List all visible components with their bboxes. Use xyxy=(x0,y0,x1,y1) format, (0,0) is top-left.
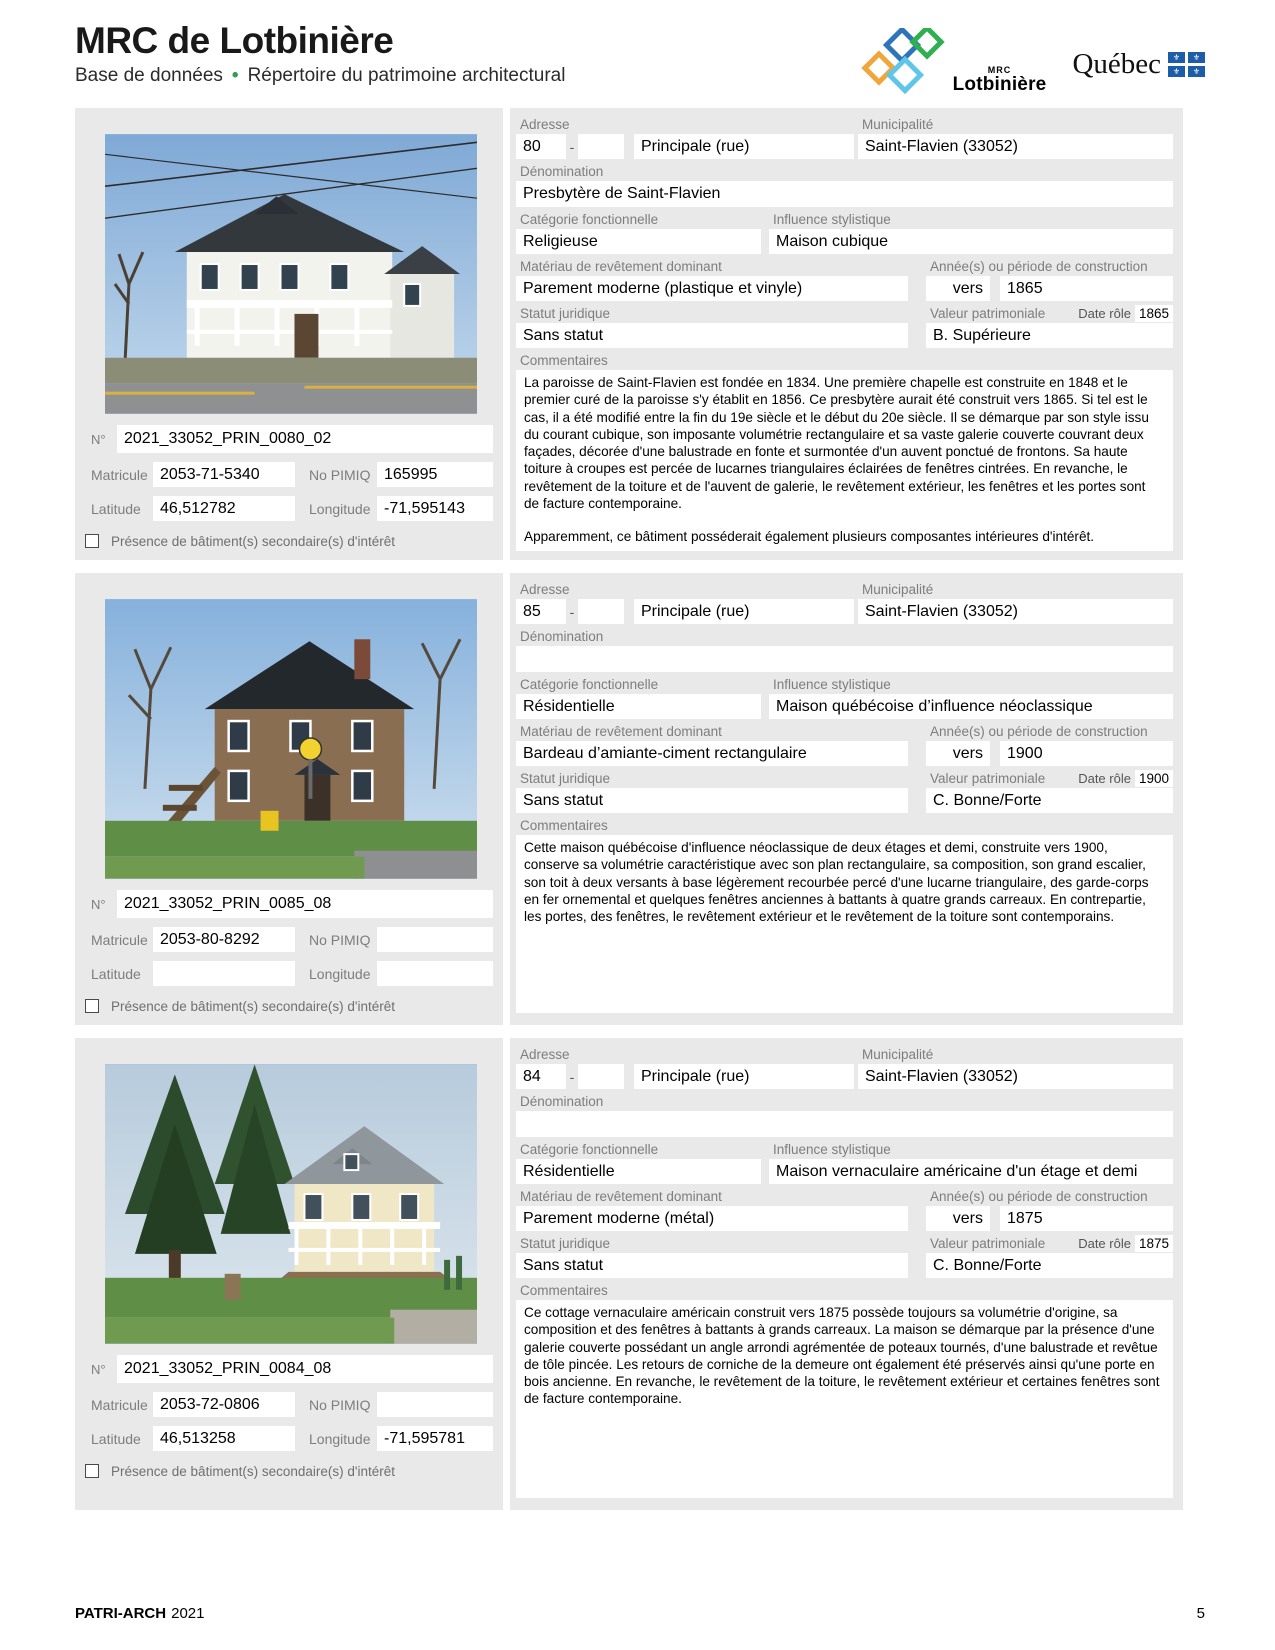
heritage-label-row: Valeur patrimoniale Date rôle 1865 xyxy=(926,303,1173,323)
footer-year: 2021 xyxy=(171,1605,204,1622)
statut-label: Statut juridique xyxy=(516,1233,908,1253)
record-2-status-row: Statut juridique Sans statut Valeur patr… xyxy=(516,768,1173,813)
categorie-label: Catégorie fonctionnelle xyxy=(516,209,761,229)
address-number2-value xyxy=(578,134,624,159)
record-1-denomination-row: Dénomination Presbytère de Saint-Flavien xyxy=(516,161,1173,207)
address-number2-value xyxy=(578,599,624,624)
municipality-group: Municipalité Saint-Flavien (33052) xyxy=(858,1044,1173,1089)
heritage-value-group: Valeur patrimoniale Date rôle 1875 C. Bo… xyxy=(926,1233,1173,1278)
record-3-right-column: Adresse 84 - Principale (rue) Municipali… xyxy=(510,1038,1183,1510)
secondary-buildings-label: Présence de bâtiment(s) secondaire(s) d'… xyxy=(107,531,397,551)
statut-value: Sans statut xyxy=(516,323,908,348)
matricule-label: Matricule xyxy=(87,1394,153,1415)
no-pimiq-label: No PIMIQ xyxy=(305,1394,377,1415)
annee-label: Année(s) ou période de construction xyxy=(926,721,1173,741)
municipalite-value: Saint-Flavien (33052) xyxy=(858,1064,1173,1089)
materiau-label: Matériau de revêtement dominant xyxy=(516,1186,908,1206)
comment-paragraph: Cette maison québécoise d'influence néoc… xyxy=(524,839,1164,925)
record-1-material-row: Matériau de revêtement dominant Parement… xyxy=(516,256,1173,301)
address-number-value: 80 xyxy=(516,134,566,159)
building-photo-presbytere xyxy=(105,134,477,414)
longitude-value: -71,595781 xyxy=(377,1426,493,1451)
address-fields: 84 - Principale (rue) xyxy=(516,1064,854,1089)
adresse-label: Adresse xyxy=(516,114,854,134)
material-group: Matériau de revêtement dominant Parement… xyxy=(516,1186,908,1231)
materiau-value: Bardeau d’amiante-ciment rectangulaire xyxy=(516,741,908,766)
address-group: Adresse 85 - Principale (rue) xyxy=(516,579,854,624)
record-3-coords-row: Latitude 46,513258 Longitude -71,595781 xyxy=(87,1426,493,1451)
page-number: 5 xyxy=(1197,1605,1205,1622)
record-3-status-row: Statut juridique Sans statut Valeur patr… xyxy=(516,1233,1173,1278)
matricule-label: Matricule xyxy=(87,464,153,485)
valeur-value: C. Bonne/Forte xyxy=(926,788,1173,813)
quebec-wordmark: Québec xyxy=(1072,48,1161,81)
statut-value: Sans statut xyxy=(516,1253,908,1278)
municipalite-value: Saint-Flavien (33052) xyxy=(858,599,1173,624)
record-1-right-column: Adresse 80 - Principale (rue) Municipali… xyxy=(510,108,1183,560)
record-1-address-row: Adresse 80 - Principale (rue) Municipali… xyxy=(516,114,1173,159)
record-card-3: N° 2021_33052_PRIN_0084_08 Matricule 205… xyxy=(75,1038,1183,1510)
construction-year-group: Année(s) ou période de construction vers… xyxy=(926,1186,1173,1231)
influence-label: Influence stylistique xyxy=(769,209,1173,229)
record-2-material-row: Matériau de revêtement dominant Bardeau … xyxy=(516,721,1173,766)
page-footer: PATRI-ARCH 2021 5 xyxy=(75,1605,1205,1622)
comment-paragraph: Ce cottage vernaculaire américain constr… xyxy=(524,1304,1164,1408)
footer-brand: PATRI-ARCH xyxy=(75,1605,166,1622)
heritage-value-group: Valeur patrimoniale Date rôle 1865 B. Su… xyxy=(926,303,1173,348)
matricule-value: 2053-80-8292 xyxy=(153,927,295,952)
numero-value: 2021_33052_PRIN_0080_02 xyxy=(117,425,493,453)
street-value: Principale (rue) xyxy=(634,134,854,159)
address-group: Adresse 80 - Principale (rue) xyxy=(516,114,854,159)
categorie-label: Catégorie fonctionnelle xyxy=(516,674,761,694)
header-logos: MRC Lotbinière Québec ⚜ ⚜ ⚜ ⚜ xyxy=(861,28,1205,100)
year-fields: vers 1875 xyxy=(926,1206,1173,1231)
annee-value: 1865 xyxy=(1000,276,1173,301)
record-2-right-column: Adresse 85 - Principale (rue) Municipali… xyxy=(510,573,1183,1025)
record-1-coords-row: Latitude 46,512782 Longitude -71,595143 xyxy=(87,496,493,521)
quebec-flag-icon: ⚜ ⚜ ⚜ ⚜ xyxy=(1168,52,1205,77)
denomination-label: Dénomination xyxy=(516,1091,1173,1111)
no-pimiq-label: No PIMIQ xyxy=(305,929,377,950)
influence-label: Influence stylistique xyxy=(769,674,1173,694)
status-group: Statut juridique Sans statut xyxy=(516,768,908,813)
address-number-value: 84 xyxy=(516,1064,566,1089)
address-group: Adresse 84 - Principale (rue) xyxy=(516,1044,854,1089)
fleur-de-lis-icon: ⚜ xyxy=(1168,52,1185,63)
record-card-2: N° 2021_33052_PRIN_0085_08 Matricule 205… xyxy=(75,573,1183,1025)
building-photo-cottage-vernaculaire xyxy=(105,1064,477,1344)
record-3-secondary-buildings-row: Présence de bâtiment(s) secondaire(s) d'… xyxy=(85,1461,493,1481)
date-role-label: Date rôle xyxy=(1078,1236,1131,1251)
secondary-buildings-checkbox xyxy=(85,1464,99,1478)
heritage-label-row: Valeur patrimoniale Date rôle 1900 xyxy=(926,768,1173,788)
denomination-label: Dénomination xyxy=(516,161,1173,181)
valeur-value: C. Bonne/Forte xyxy=(926,1253,1173,1278)
influence-group: Influence stylistique Maison cubique xyxy=(769,209,1173,254)
secondary-buildings-checkbox xyxy=(85,999,99,1013)
year-fields: vers 1900 xyxy=(926,741,1173,766)
no-pimiq-value xyxy=(377,927,493,952)
categorie-value: Résidentielle xyxy=(516,694,761,719)
annee-value: 1875 xyxy=(1000,1206,1173,1231)
record-3-numero-row: N° 2021_33052_PRIN_0084_08 xyxy=(87,1355,493,1383)
record-2-address-row: Adresse 85 - Principale (rue) Municipali… xyxy=(516,579,1173,624)
materiau-label: Matériau de revêtement dominant xyxy=(516,256,908,276)
secondary-buildings-label: Présence de bâtiment(s) secondaire(s) d'… xyxy=(107,1461,397,1481)
denomination-value xyxy=(516,1111,1173,1137)
construction-year-group: Année(s) ou période de construction vers… xyxy=(926,256,1173,301)
matricule-label: Matricule xyxy=(87,929,153,950)
latitude-label: Latitude xyxy=(87,963,153,984)
municipalite-value: Saint-Flavien (33052) xyxy=(858,134,1173,159)
influence-group: Influence stylistique Maison vernaculair… xyxy=(769,1139,1173,1184)
commentaires-label: Commentaires xyxy=(516,815,1173,835)
longitude-value xyxy=(377,961,493,986)
municipality-group: Municipalité Saint-Flavien (33052) xyxy=(858,114,1173,159)
mrc-diamonds-icon xyxy=(861,28,947,100)
numero-value: 2021_33052_PRIN_0085_08 xyxy=(117,890,493,918)
material-group: Matériau de revêtement dominant Bardeau … xyxy=(516,721,908,766)
address-separator: - xyxy=(566,1069,578,1085)
numero-label: N° xyxy=(87,1359,117,1379)
matricule-value: 2053-72-0806 xyxy=(153,1392,295,1417)
address-fields: 85 - Principale (rue) xyxy=(516,599,854,624)
record-2-numero-row: N° 2021_33052_PRIN_0085_08 xyxy=(87,890,493,918)
record-2-coords-row: Latitude Longitude xyxy=(87,961,493,986)
record-2-denomination-row: Dénomination xyxy=(516,626,1173,672)
address-separator: - xyxy=(566,139,578,155)
address-number2-value xyxy=(578,1064,624,1089)
municipalite-label: Municipalité xyxy=(858,114,1173,134)
commentaires-label: Commentaires xyxy=(516,1280,1173,1300)
vers-value: vers xyxy=(926,1206,990,1231)
record-3-category-row: Catégorie fonctionnelle Résidentielle In… xyxy=(516,1139,1173,1184)
page-header: MRC de Lotbinière Base de données•Répert… xyxy=(75,20,1205,104)
record-1-status-row: Statut juridique Sans statut Valeur patr… xyxy=(516,303,1173,348)
materiau-value: Parement moderne (plastique et vinyle) xyxy=(516,276,908,301)
influence-value: Maison québécoise d’influence néoclassiq… xyxy=(769,694,1173,719)
construction-year-group: Année(s) ou période de construction vers… xyxy=(926,721,1173,766)
date-role-value: 1865 xyxy=(1135,305,1173,322)
record-1-matricule-row: Matricule 2053-71-5340 No PIMIQ 165995 xyxy=(87,462,493,487)
valeur-label: Valeur patrimoniale xyxy=(926,768,1047,788)
no-pimiq-label: No PIMIQ xyxy=(305,464,377,485)
latitude-value xyxy=(153,961,295,986)
record-1-left-column: N° 2021_33052_PRIN_0080_02 Matricule 205… xyxy=(75,108,503,560)
record-3-left-column: N° 2021_33052_PRIN_0084_08 Matricule 205… xyxy=(75,1038,503,1510)
category-group: Catégorie fonctionnelle Résidentielle xyxy=(516,674,761,719)
matricule-value: 2053-71-5340 xyxy=(153,462,295,487)
latitude-value: 46,513258 xyxy=(153,1426,295,1451)
valeur-label: Valeur patrimoniale xyxy=(926,303,1047,323)
subtitle-right: Répertoire du patrimoine architectural xyxy=(248,65,566,86)
quebec-logo: Québec ⚜ ⚜ ⚜ ⚜ xyxy=(1072,48,1205,81)
subtitle-dot: • xyxy=(232,65,239,86)
categorie-value: Résidentielle xyxy=(516,1159,761,1184)
date-role-label: Date rôle xyxy=(1078,306,1131,321)
heritage-value-group: Valeur patrimoniale Date rôle 1900 C. Bo… xyxy=(926,768,1173,813)
categorie-label: Catégorie fonctionnelle xyxy=(516,1139,761,1159)
influence-value: Maison cubique xyxy=(769,229,1173,254)
numero-value: 2021_33052_PRIN_0084_08 xyxy=(117,1355,493,1383)
statut-label: Statut juridique xyxy=(516,768,908,788)
subtitle-left: Base de données xyxy=(75,65,223,86)
address-separator: - xyxy=(566,604,578,620)
mrc-lotbiniere-logo: MRC Lotbinière xyxy=(861,28,1047,100)
street-value: Principale (rue) xyxy=(634,1064,854,1089)
annee-label: Année(s) ou période de construction xyxy=(926,256,1173,276)
record-1-comments-row: Commentaires La paroisse de Saint-Flavie… xyxy=(516,350,1173,551)
record-3-denomination-row: Dénomination xyxy=(516,1091,1173,1137)
valeur-label: Valeur patrimoniale xyxy=(926,1233,1047,1253)
numero-label: N° xyxy=(87,894,117,914)
adresse-label: Adresse xyxy=(516,579,854,599)
commentaires-text: Ce cottage vernaculaire américain constr… xyxy=(516,1300,1173,1498)
statut-label: Statut juridique xyxy=(516,303,908,323)
secondary-buildings-label: Présence de bâtiment(s) secondaire(s) d'… xyxy=(107,996,397,1016)
report-page: MRC de Lotbinière Base de données•Répert… xyxy=(0,0,1275,1650)
no-pimiq-value xyxy=(377,1392,493,1417)
annee-label: Année(s) ou période de construction xyxy=(926,1186,1173,1206)
longitude-label: Longitude xyxy=(305,963,377,984)
commentaires-text: Cette maison québécoise d'influence néoc… xyxy=(516,835,1173,1013)
date-role-label: Date rôle xyxy=(1078,771,1131,786)
fleur-de-lis-icon: ⚜ xyxy=(1188,52,1205,63)
municipalite-label: Municipalité xyxy=(858,1044,1173,1064)
record-2-left-column: N° 2021_33052_PRIN_0085_08 Matricule 205… xyxy=(75,573,503,1025)
municipality-group: Municipalité Saint-Flavien (33052) xyxy=(858,579,1173,624)
fleur-de-lis-icon: ⚜ xyxy=(1168,66,1185,77)
category-group: Catégorie fonctionnelle Religieuse xyxy=(516,209,761,254)
date-role-value: 1875 xyxy=(1135,1235,1173,1252)
record-2-secondary-buildings-row: Présence de bâtiment(s) secondaire(s) d'… xyxy=(85,996,493,1016)
latitude-label: Latitude xyxy=(87,1428,153,1449)
record-2-matricule-row: Matricule 2053-80-8292 No PIMIQ xyxy=(87,927,493,952)
numero-label: N° xyxy=(87,429,117,449)
influence-group: Influence stylistique Maison québécoise … xyxy=(769,674,1173,719)
influence-value: Maison vernaculaire américaine d'un étag… xyxy=(769,1159,1173,1184)
status-group: Statut juridique Sans statut xyxy=(516,1233,908,1278)
record-3-material-row: Matériau de revêtement dominant Parement… xyxy=(516,1186,1173,1231)
record-2-comments-row: Commentaires Cette maison québécoise d'i… xyxy=(516,815,1173,1013)
mrc-logo-big-label: Lotbinière xyxy=(953,75,1047,94)
record-card-1: N° 2021_33052_PRIN_0080_02 Matricule 205… xyxy=(75,108,1183,560)
material-group: Matériau de revêtement dominant Parement… xyxy=(516,256,908,301)
denomination-value: Presbytère de Saint-Flavien xyxy=(516,181,1173,207)
categorie-value: Religieuse xyxy=(516,229,761,254)
year-fields: vers 1865 xyxy=(926,276,1173,301)
heritage-label-row: Valeur patrimoniale Date rôle 1875 xyxy=(926,1233,1173,1253)
fleur-de-lis-icon: ⚜ xyxy=(1188,66,1205,77)
record-3-matricule-row: Matricule 2053-72-0806 No PIMIQ xyxy=(87,1392,493,1417)
influence-label: Influence stylistique xyxy=(769,1139,1173,1159)
statut-value: Sans statut xyxy=(516,788,908,813)
latitude-value: 46,512782 xyxy=(153,496,295,521)
vers-value: vers xyxy=(926,741,990,766)
record-1-secondary-buildings-row: Présence de bâtiment(s) secondaire(s) d'… xyxy=(85,531,493,551)
record-3-address-row: Adresse 84 - Principale (rue) Municipali… xyxy=(516,1044,1173,1089)
status-group: Statut juridique Sans statut xyxy=(516,303,908,348)
commentaires-text: La paroisse de Saint-Flavien est fondée … xyxy=(516,370,1173,551)
date-role-value: 1900 xyxy=(1135,770,1173,787)
vers-value: vers xyxy=(926,276,990,301)
commentaires-label: Commentaires xyxy=(516,350,1173,370)
record-3-comments-row: Commentaires Ce cottage vernaculaire amé… xyxy=(516,1280,1173,1498)
no-pimiq-value: 165995 xyxy=(377,462,493,487)
comment-paragraph-2: Apparemment, ce bâtiment posséderait éga… xyxy=(524,528,1164,545)
denomination-label: Dénomination xyxy=(516,626,1173,646)
comment-paragraph: La paroisse de Saint-Flavien est fondée … xyxy=(524,374,1164,512)
record-1-numero-row: N° 2021_33052_PRIN_0080_02 xyxy=(87,425,493,453)
materiau-label: Matériau de revêtement dominant xyxy=(516,721,908,741)
municipalite-label: Municipalité xyxy=(858,579,1173,599)
longitude-label: Longitude xyxy=(305,498,377,519)
category-group: Catégorie fonctionnelle Résidentielle xyxy=(516,1139,761,1184)
latitude-label: Latitude xyxy=(87,498,153,519)
denomination-value xyxy=(516,646,1173,672)
valeur-value: B. Supérieure xyxy=(926,323,1173,348)
record-2-category-row: Catégorie fonctionnelle Résidentielle In… xyxy=(516,674,1173,719)
materiau-value: Parement moderne (métal) xyxy=(516,1206,908,1231)
building-photo-maison-quebecoise xyxy=(105,599,477,879)
annee-value: 1900 xyxy=(1000,741,1173,766)
address-fields: 80 - Principale (rue) xyxy=(516,134,854,159)
longitude-value: -71,595143 xyxy=(377,496,493,521)
longitude-label: Longitude xyxy=(305,1428,377,1449)
record-1-category-row: Catégorie fonctionnelle Religieuse Influ… xyxy=(516,209,1173,254)
address-number-value: 85 xyxy=(516,599,566,624)
adresse-label: Adresse xyxy=(516,1044,854,1064)
mrc-logo-text: MRC Lotbinière xyxy=(953,66,1047,100)
secondary-buildings-checkbox xyxy=(85,534,99,548)
street-value: Principale (rue) xyxy=(634,599,854,624)
